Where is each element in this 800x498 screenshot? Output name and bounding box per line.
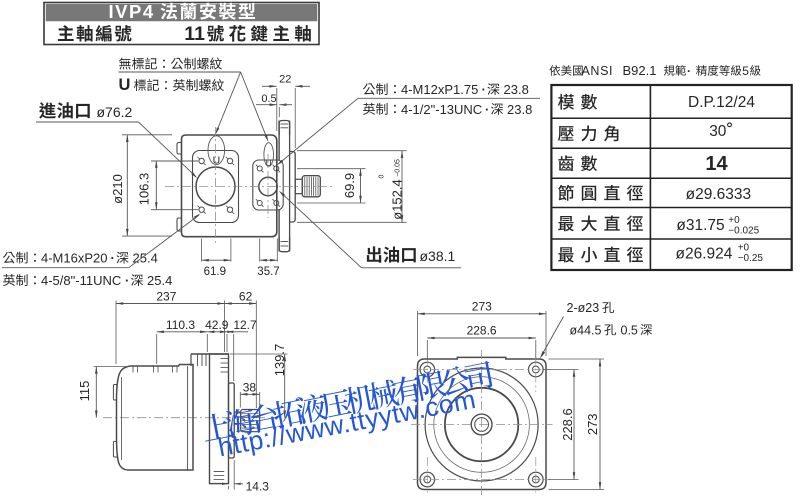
svg-text:ø29.6333: ø29.6333 [686, 186, 752, 203]
svg-text:ø210: ø210 [110, 174, 125, 204]
svg-text:·: · [687, 64, 691, 78]
svg-text:273: 273 [472, 299, 492, 313]
svg-text:0.5: 0.5 [621, 323, 638, 337]
svg-text:12.7: 12.7 [233, 318, 257, 332]
svg-text:ø31.75: ø31.75 [676, 217, 724, 234]
svg-text:22: 22 [279, 74, 291, 86]
svg-text:35.7: 35.7 [257, 266, 279, 278]
svg-text:14.3: 14.3 [246, 479, 270, 493]
svg-text:ø152.4: ø152.4 [389, 179, 404, 219]
svg-text:ANSI: ANSI [582, 64, 614, 78]
svg-text:IVP4: IVP4 [109, 1, 155, 22]
svg-text:ø76.2: ø76.2 [97, 104, 133, 120]
svg-text:228.6: 228.6 [560, 408, 575, 441]
svg-text:·: · [482, 82, 486, 97]
svg-text:42.9: 42.9 [205, 318, 229, 332]
svg-text:·: · [485, 102, 489, 117]
svg-text:·: · [111, 251, 115, 266]
svg-text:4-M16xP20: 4-M16xP20 [41, 251, 107, 266]
svg-text:237: 237 [156, 290, 176, 304]
svg-text:+0: +0 [738, 243, 750, 254]
svg-text:23.8: 23.8 [504, 82, 529, 97]
svg-text:0: 0 [379, 174, 386, 178]
svg-text:B92.1: B92.1 [623, 63, 657, 78]
svg-text:D.P.12/24: D.P.12/24 [688, 94, 755, 111]
svg-text:4-5/8"-11UNC: 4-5/8"-11UNC [41, 273, 121, 288]
svg-text:−0.025: −0.025 [728, 226, 759, 237]
svg-text:62: 62 [239, 290, 253, 304]
svg-text:25.4: 25.4 [133, 251, 158, 266]
svg-text:14: 14 [705, 153, 728, 175]
svg-text:4-1/2"-13UNC: 4-1/2"-13UNC [401, 102, 482, 117]
svg-text:5: 5 [742, 64, 749, 78]
svg-text:4-M12xP1.75: 4-M12xP1.75 [401, 82, 478, 97]
svg-text:11: 11 [184, 23, 205, 45]
svg-text:273: 273 [585, 413, 600, 435]
svg-text:25.4: 25.4 [147, 273, 172, 288]
svg-text:+0: +0 [728, 215, 740, 226]
svg-text:23.8: 23.8 [507, 102, 532, 117]
svg-text:0.5: 0.5 [261, 93, 276, 105]
svg-text:38: 38 [243, 380, 257, 394]
svg-text:30: 30 [709, 123, 727, 140]
svg-text:−0.05: −0.05 [395, 159, 402, 177]
svg-text:139.7: 139.7 [272, 344, 287, 377]
svg-text:115: 115 [77, 381, 92, 402]
svg-text:−0.25: −0.25 [738, 253, 764, 264]
svg-text:228.6: 228.6 [467, 323, 497, 337]
svg-text:U: U [119, 76, 131, 94]
svg-text:ø26.924: ø26.924 [676, 246, 733, 263]
svg-text:ø44.5: ø44.5 [570, 323, 602, 337]
svg-text:61.9: 61.9 [204, 266, 226, 278]
svg-text:106.3: 106.3 [137, 173, 152, 206]
svg-text:·: · [125, 273, 129, 288]
svg-text:2-ø23: 2-ø23 [567, 301, 600, 315]
svg-text:69.9: 69.9 [342, 173, 357, 198]
svg-text:ø38.1: ø38.1 [420, 248, 456, 264]
svg-text:110.3: 110.3 [166, 318, 195, 332]
